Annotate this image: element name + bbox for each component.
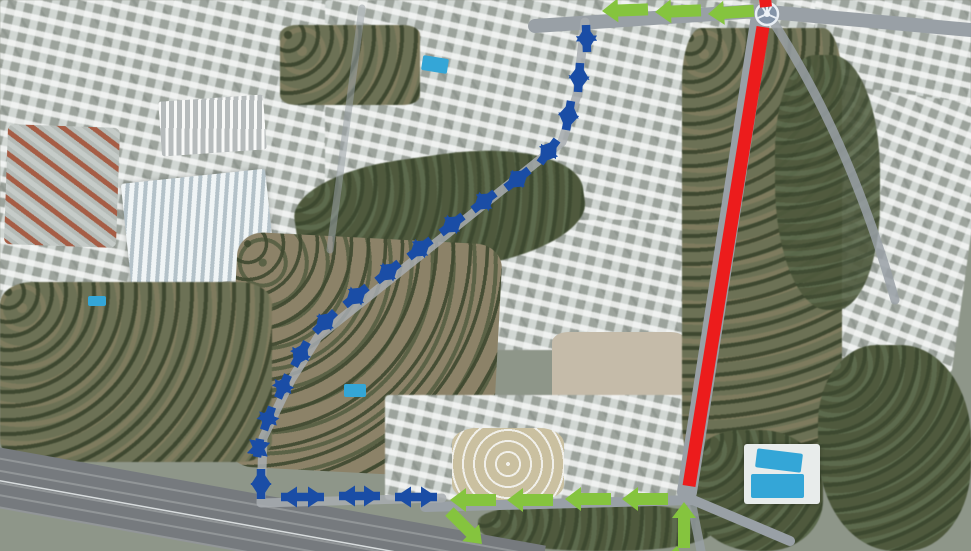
closed-road-line [689,0,766,486]
street-center-vertical [330,8,362,250]
flow-arrow-bottom-4 [622,487,668,511]
street-network [330,8,971,551]
roundabout-hub [764,11,770,17]
detour-arrow [586,25,587,52]
detour-arrow [566,101,571,130]
flow-arrow-top-right [707,0,755,26]
street-right-diagonal [772,20,895,300]
detour-arrow [257,439,260,457]
closed-road-main [689,27,763,486]
closed-road-stub-top [765,0,766,7]
annotation-overlay [0,0,971,551]
street-under-detour [261,22,585,503]
detour-arrow [578,63,580,92]
map-canvas [0,0,971,551]
detour-route-arrows [257,25,587,499]
traffic-flow-arrows [441,0,755,551]
